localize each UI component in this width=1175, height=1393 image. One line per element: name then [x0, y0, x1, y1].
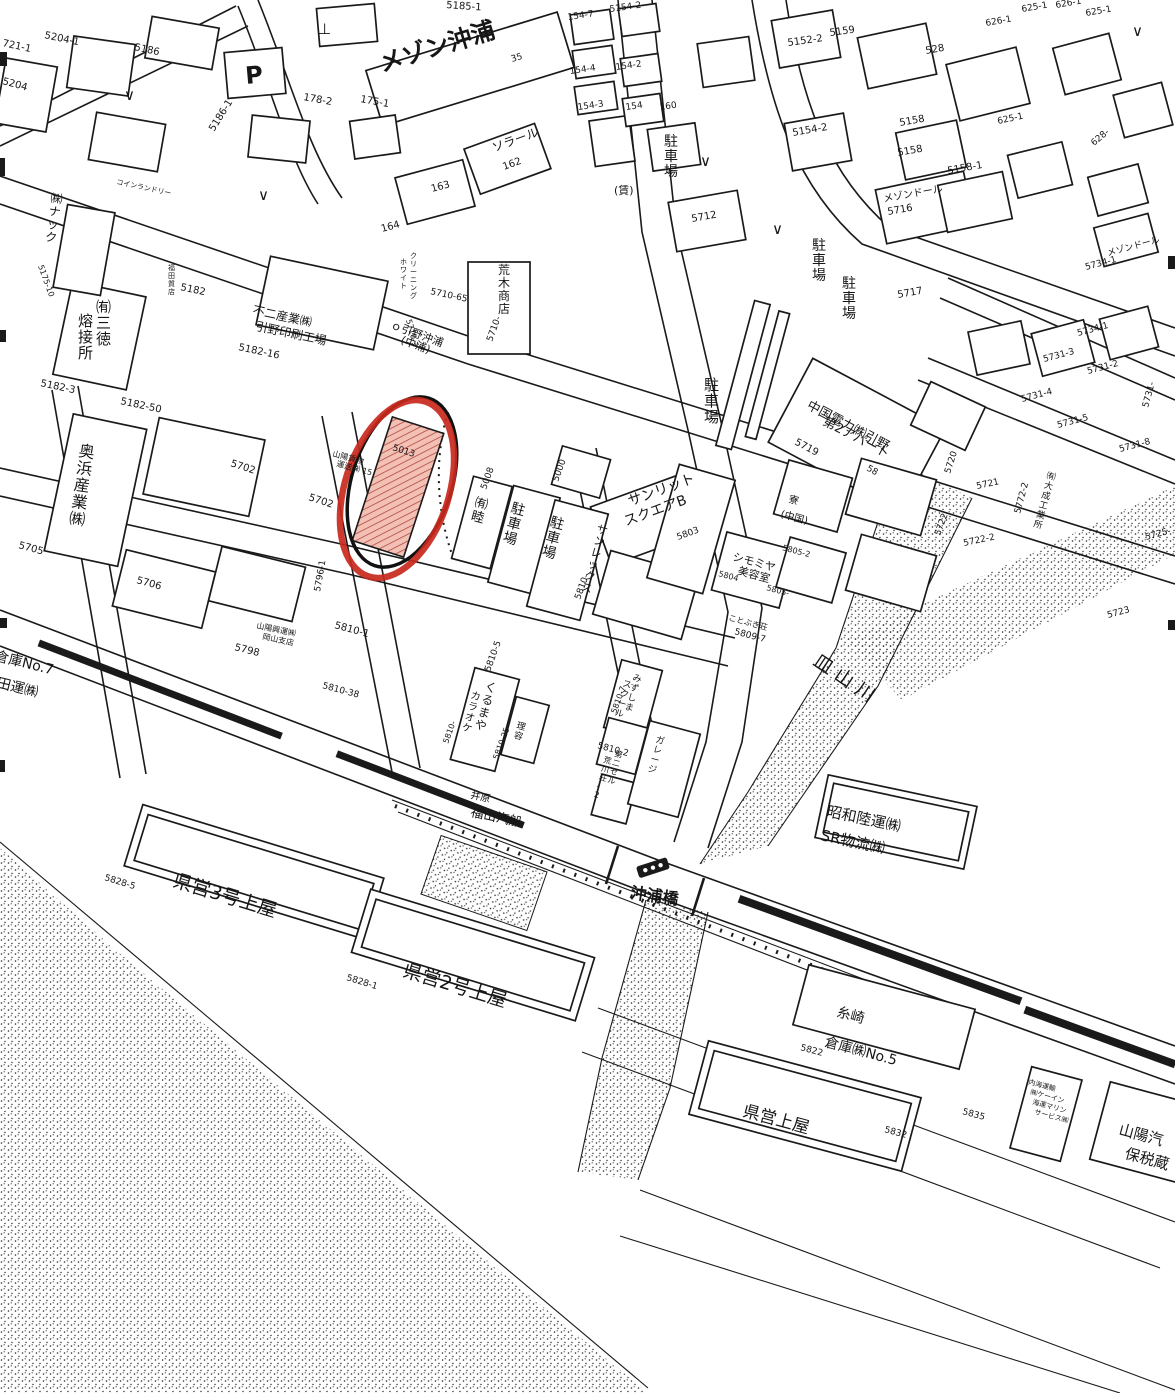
map-label: 5828-1	[345, 973, 378, 992]
map-label: 5175-10	[36, 264, 56, 298]
map-label: 5182-50	[119, 396, 162, 415]
map-label: 5159	[829, 25, 856, 39]
map-label: 田運㈱	[0, 675, 40, 701]
map-label: 5798	[233, 642, 260, 659]
map-label: 5731-8	[1118, 437, 1152, 455]
map-label: 5182-16	[237, 342, 280, 361]
map-label: 5182-3	[39, 378, 76, 396]
map-label: 626-1	[1055, 0, 1082, 11]
map-label: コインランドリー	[116, 178, 172, 197]
map-label: 160	[659, 101, 678, 113]
map-label: 528	[925, 43, 946, 57]
map-label: 5720	[943, 450, 960, 475]
map-label: 5828-5	[103, 873, 136, 892]
map-label: 5723	[1106, 605, 1131, 621]
check-mark-icon: ∨	[772, 220, 783, 238]
map-label: 5204-1	[43, 30, 80, 48]
cadastral-map: 721-15204-1520451865186-1178-2175-15185-…	[0, 0, 1175, 1393]
check-mark-icon: ∨	[124, 86, 135, 104]
map-label: 178-2	[302, 92, 333, 108]
cadastral-map-canvas: 721-15204-1520451865186-1178-2175-15185-…	[0, 0, 1175, 1393]
map-label: 福田質店	[168, 263, 175, 296]
map-label: 5810-1	[333, 620, 370, 640]
map-label: 5717	[897, 286, 924, 301]
map-label: ことぶき荘	[727, 612, 768, 632]
map-label: 625-1	[1085, 5, 1112, 19]
map-label: 5835	[961, 1107, 986, 1123]
map-label: 5702	[307, 492, 335, 510]
map-label: (賃)	[614, 183, 634, 197]
map-label: 5796-1	[313, 559, 328, 592]
map-label: 5721	[976, 477, 1000, 492]
traffic-signal-icon	[636, 857, 670, 878]
map-label: 福山汽船	[469, 805, 523, 830]
map-label: 5822	[799, 1043, 824, 1059]
check-mark-icon: ∨	[258, 186, 269, 204]
map-label: 駐車場	[704, 376, 719, 426]
map-label: 164	[380, 219, 401, 235]
map-label: 熔接所	[78, 312, 93, 362]
map-label: 5710-65	[429, 287, 468, 305]
check-mark-icon: ∨	[1132, 22, 1143, 40]
map-label: 5182	[179, 282, 206, 298]
map-label: 荒木商店	[498, 263, 510, 316]
map-label: 626-1	[985, 15, 1012, 29]
map-label: ㈱ナック	[44, 191, 63, 245]
map-label: 5705	[17, 540, 44, 557]
survey-mark-icon: ⊥	[318, 20, 331, 38]
map-label: ㈲大成工業所	[1032, 469, 1057, 531]
map-label: 625-1	[997, 112, 1025, 127]
map-label: 628-	[1090, 128, 1112, 149]
check-mark-icon: ∨	[700, 152, 711, 170]
map-label: 駐車場	[842, 276, 856, 322]
map-label: 倉庫No.7	[0, 647, 56, 678]
map-label: 5186-1	[207, 98, 235, 134]
map-label: 5731-5	[1056, 413, 1089, 431]
map-label: 5722-2	[963, 533, 996, 549]
map-label: 駐車場	[664, 134, 678, 180]
highlight-annotation	[319, 383, 477, 593]
map-label: 5185-1	[446, 0, 482, 13]
parking-icon: P	[244, 61, 264, 90]
map-label: 5810-5	[483, 640, 503, 673]
map-label: ホワイト	[400, 258, 407, 290]
map-label: ㈲三徳	[96, 298, 111, 348]
map-label: 駐車場	[812, 238, 826, 284]
map-label: クリーニング	[410, 252, 417, 300]
map-label: 625-1	[1021, 1, 1048, 15]
map-label: 5731-	[1141, 381, 1157, 409]
map-label: 5810-38	[321, 681, 360, 700]
